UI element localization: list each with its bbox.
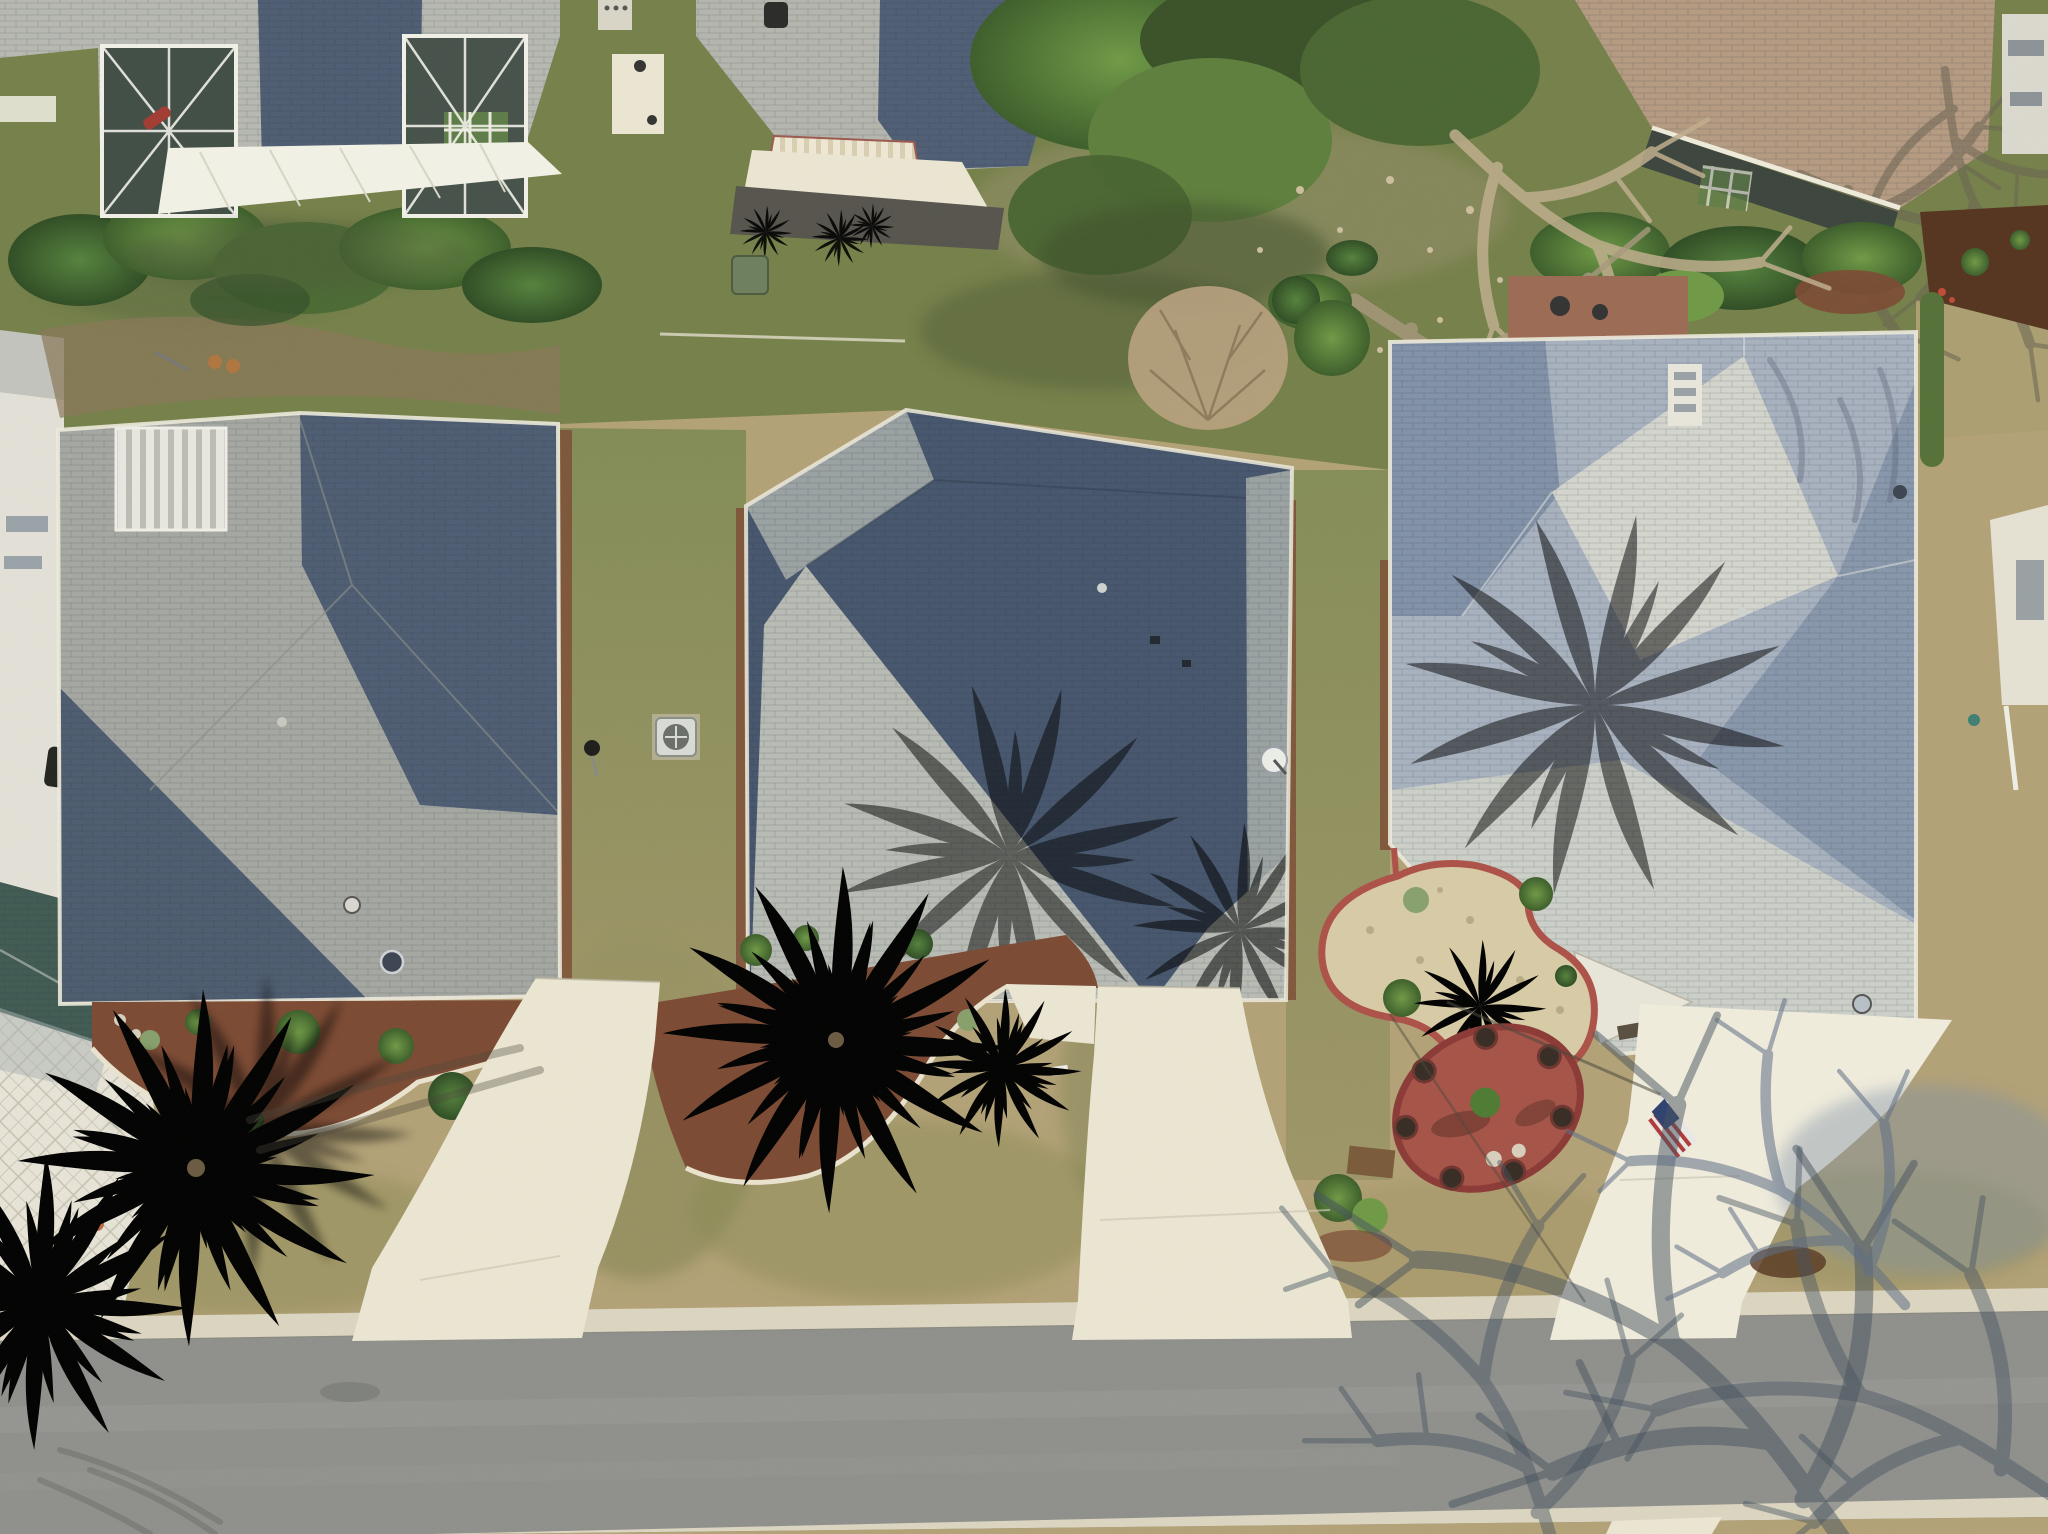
photo-grain <box>0 0 2048 1534</box>
aerial-photo <box>0 0 2048 1534</box>
aerial-photo-canvas <box>0 0 2048 1534</box>
